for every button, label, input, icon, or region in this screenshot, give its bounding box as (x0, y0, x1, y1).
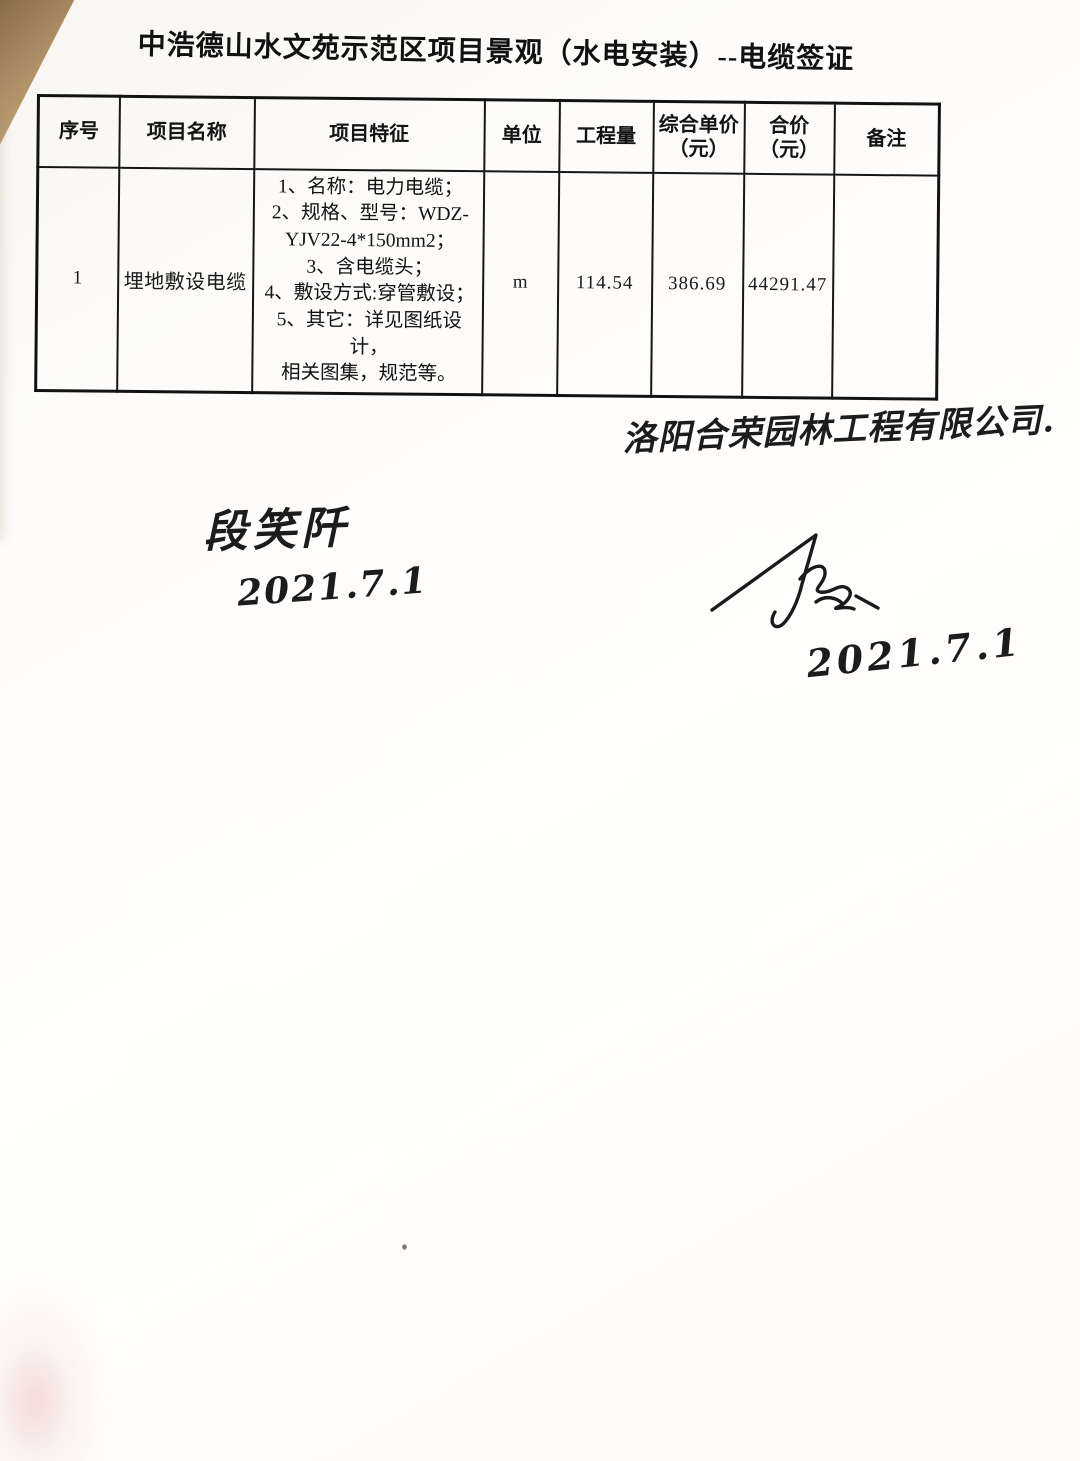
table-header-row: 序号 项目名称 项目特征 单位 工程量 综合单价 （元） 合价 （元） 备注 (38, 96, 940, 176)
header-unit: 单位 (484, 100, 560, 172)
scanned-document-page: 中浩德山水文苑示范区项目景观（水电安装）--电缆签证 序号 项目名称 项目特征 … (0, 0, 1080, 1461)
header-remark-label: 备注 (866, 128, 906, 150)
header-quantity: 工程量 (559, 101, 654, 173)
cell-unit-price: 386.69 (651, 172, 744, 397)
header-unit-price: 综合单价 （元） (653, 101, 745, 173)
header-name: 项目名称 (119, 96, 255, 168)
header-remark: 备注 (834, 103, 940, 175)
paper-edge-shadow (0, 120, 8, 540)
header-total-price: 合价 （元） (744, 102, 835, 174)
handwritten-signer-name: 段笑阡 (202, 491, 351, 560)
cost-signature-table: 序号 项目名称 项目特征 单位 工程量 综合单价 （元） 合价 （元） 备注 1… (34, 94, 941, 401)
header-total-price-sub: （元） (747, 138, 831, 163)
document-title: 中浩德山水文苑示范区项目景观（水电安装）--电缆签证 (112, 22, 881, 78)
header-features-label: 项目特征 (329, 123, 409, 146)
cell-total-price: 44291.47 (742, 173, 834, 398)
header-name-label: 项目名称 (147, 121, 227, 144)
header-seq: 序号 (38, 96, 120, 168)
header-unit-price-sub: （元） (656, 137, 741, 162)
cell-project-name: 埋地敷设电缆 (117, 167, 254, 392)
handwritten-company-name: 洛阳合荣园林工程有限公司. (621, 392, 1056, 461)
header-unit-price-label: 综合单价 (656, 113, 741, 138)
paper-speck (402, 1244, 407, 1250)
photo-blur-bottom-left (0, 1281, 110, 1461)
cell-remark (832, 174, 939, 399)
header-total-price-label: 合价 (747, 114, 831, 139)
table-row: 1 埋地敷设电缆 1、名称：电力电缆； 2、规格、型号：WDZ- YJV22-4… (36, 167, 939, 400)
header-quantity-label: 工程量 (576, 125, 636, 148)
cell-seq: 1 (36, 167, 119, 392)
cell-quantity: 114.54 (557, 172, 653, 397)
header-unit-label: 单位 (502, 125, 542, 147)
header-seq-label: 序号 (59, 120, 99, 142)
cell-unit: m (482, 171, 559, 396)
handwritten-signer-date: 2021.7.1 (236, 559, 430, 614)
cell-project-features: 1、名称：电力电缆； 2、规格、型号：WDZ- YJV22-4*150mm2； … (252, 169, 484, 395)
header-features: 项目特征 (254, 98, 485, 171)
